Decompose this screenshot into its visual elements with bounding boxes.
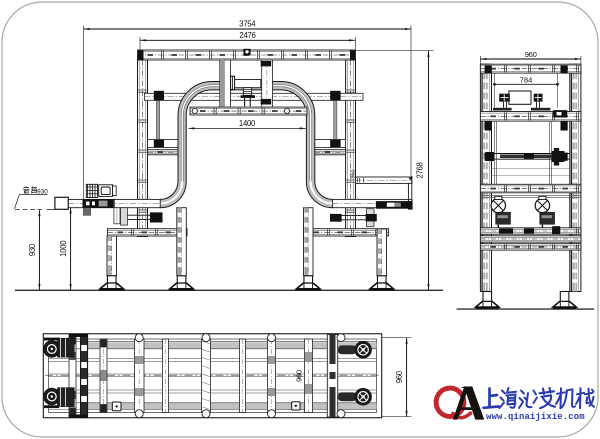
svg-text:960: 960: [525, 50, 537, 59]
svg-text:3754: 3754: [239, 20, 256, 29]
svg-text:784: 784: [520, 75, 533, 84]
svg-text:960: 960: [350, 169, 356, 178]
svg-text:2768: 2768: [416, 162, 425, 178]
svg-text:960: 960: [295, 370, 304, 382]
svg-text:1400: 1400: [239, 119, 256, 128]
svg-text:2476: 2476: [239, 31, 255, 40]
svg-text:930: 930: [28, 243, 37, 256]
svg-text:1000: 1000: [59, 240, 68, 257]
svg-text:www.qinaijixie.com: www.qinaijixie.com: [486, 412, 585, 422]
svg-text:960: 960: [395, 370, 404, 383]
